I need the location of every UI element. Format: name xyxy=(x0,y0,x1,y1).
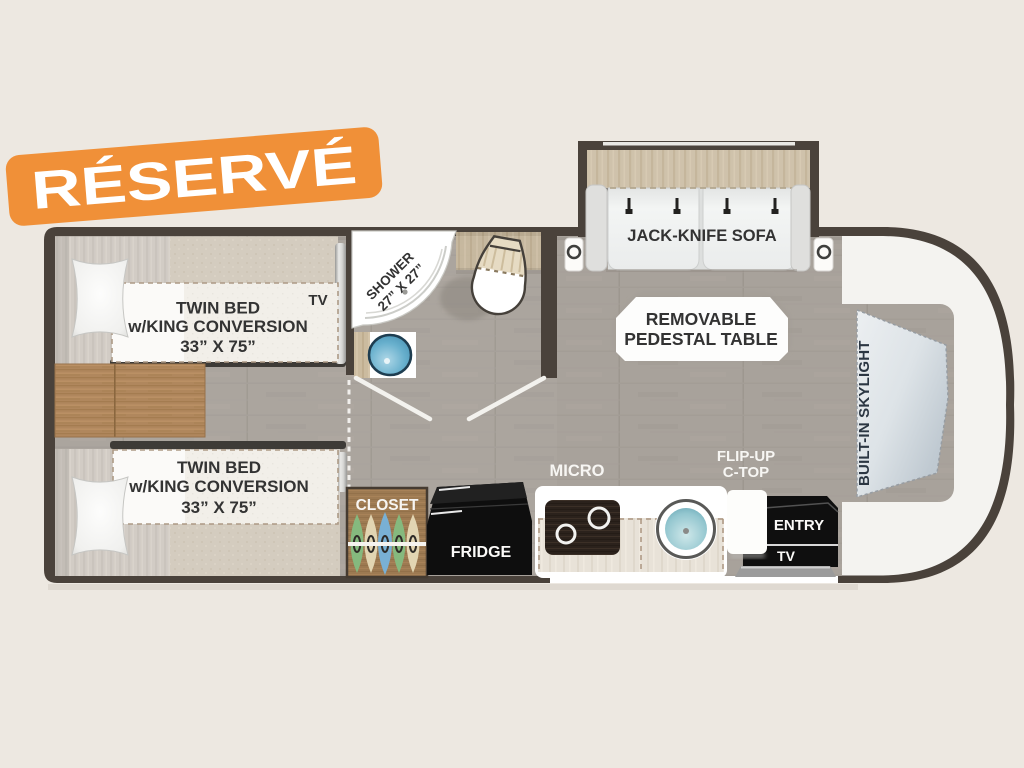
svg-text:ENTRY: ENTRY xyxy=(774,517,824,534)
svg-text:MICRO: MICRO xyxy=(550,462,605,480)
svg-text:FLIP-UP: FLIP-UP xyxy=(717,448,775,465)
svg-text:TWIN BED: TWIN BED xyxy=(177,458,261,477)
svg-text:JACK-KNIFE SOFA: JACK-KNIFE SOFA xyxy=(627,227,777,245)
svg-text:PEDESTAL TABLE: PEDESTAL TABLE xyxy=(624,329,778,349)
svg-text:C-TOP: C-TOP xyxy=(723,464,769,481)
svg-text:w/KING CONVERSION: w/KING CONVERSION xyxy=(127,317,307,336)
svg-text:33” X 75”: 33” X 75” xyxy=(180,337,256,356)
svg-text:CLOSET: CLOSET xyxy=(356,497,419,514)
svg-text:33” X 75”: 33” X 75” xyxy=(181,498,257,517)
svg-text:REMOVABLE: REMOVABLE xyxy=(646,309,757,329)
svg-text:w/KING CONVERSION: w/KING CONVERSION xyxy=(128,477,308,496)
svg-text:TV: TV xyxy=(777,548,796,564)
svg-text:FRIDGE: FRIDGE xyxy=(451,544,512,561)
svg-text:TWIN BED: TWIN BED xyxy=(176,299,260,318)
svg-text:TV: TV xyxy=(308,292,327,309)
svg-text:BUILT-IN SKYLIGHT: BUILT-IN SKYLIGHT xyxy=(856,340,873,486)
